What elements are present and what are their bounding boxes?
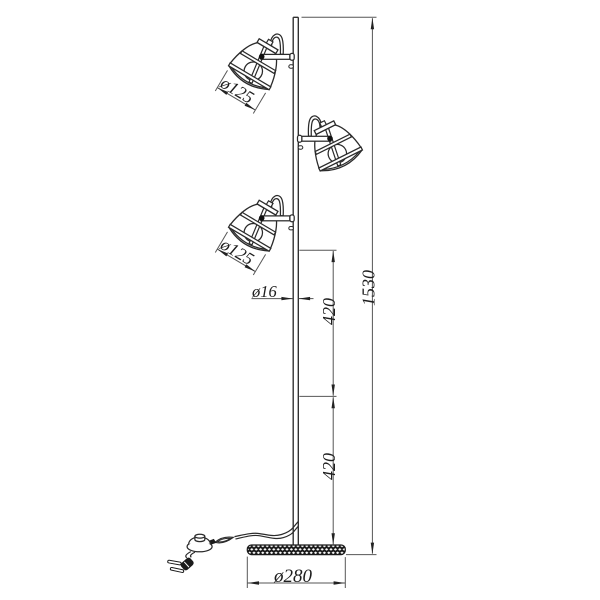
svg-text:420: 420 [319,453,339,480]
svg-text:420: 420 [319,298,339,325]
svg-text:1530: 1530 [359,270,379,306]
svg-text:ø280: ø280 [273,566,313,587]
